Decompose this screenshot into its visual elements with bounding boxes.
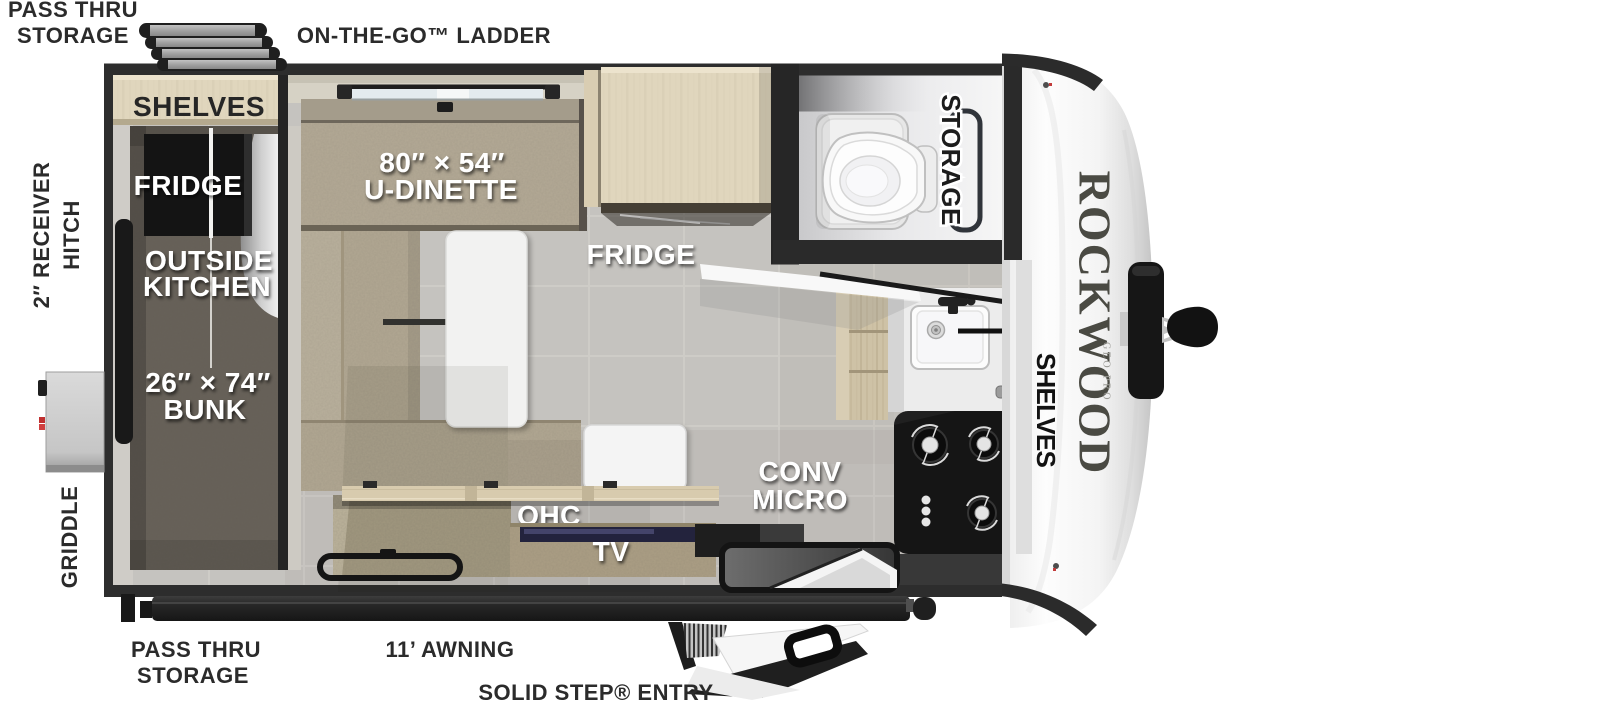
svg-text:PASS THRU: PASS THRU [131, 637, 261, 662]
svg-text:SHELVES: SHELVES [1031, 353, 1061, 468]
svg-text:ROCKWOOD: ROCKWOOD [1069, 171, 1120, 476]
svg-text:11’ AWNING: 11’ AWNING [386, 637, 515, 662]
svg-text:TV: TV [593, 536, 630, 567]
svg-text:GEO PRO: GEO PRO [1101, 342, 1112, 402]
svg-text:BUNK: BUNK [164, 394, 247, 425]
svg-text:PASS THRU: PASS THRU [8, 0, 138, 22]
svg-text:STORAGE: STORAGE [936, 94, 966, 226]
svg-text:HITCH: HITCH [59, 200, 84, 270]
svg-text:KITCHEN: KITCHEN [143, 271, 271, 302]
svg-text:FRIDGE: FRIDGE [134, 170, 243, 201]
svg-text:FRIDGE: FRIDGE [587, 239, 696, 270]
svg-text:ON-THE-GO™ LADDER: ON-THE-GO™ LADDER [297, 23, 551, 48]
svg-text:SHELVES: SHELVES [133, 91, 265, 122]
svg-text:STORAGE: STORAGE [17, 23, 129, 48]
svg-text:MICRO: MICRO [752, 484, 848, 515]
svg-text:2″ RECEIVER: 2″ RECEIVER [29, 162, 54, 309]
svg-text:U-DINETTE: U-DINETTE [364, 174, 518, 205]
svg-text:GRIDDLE: GRIDDLE [57, 486, 82, 589]
svg-text:SOLID STEP® ENTRY: SOLID STEP® ENTRY [478, 680, 713, 703]
svg-text:CONV: CONV [759, 456, 842, 487]
svg-text:STORAGE: STORAGE [137, 663, 249, 688]
